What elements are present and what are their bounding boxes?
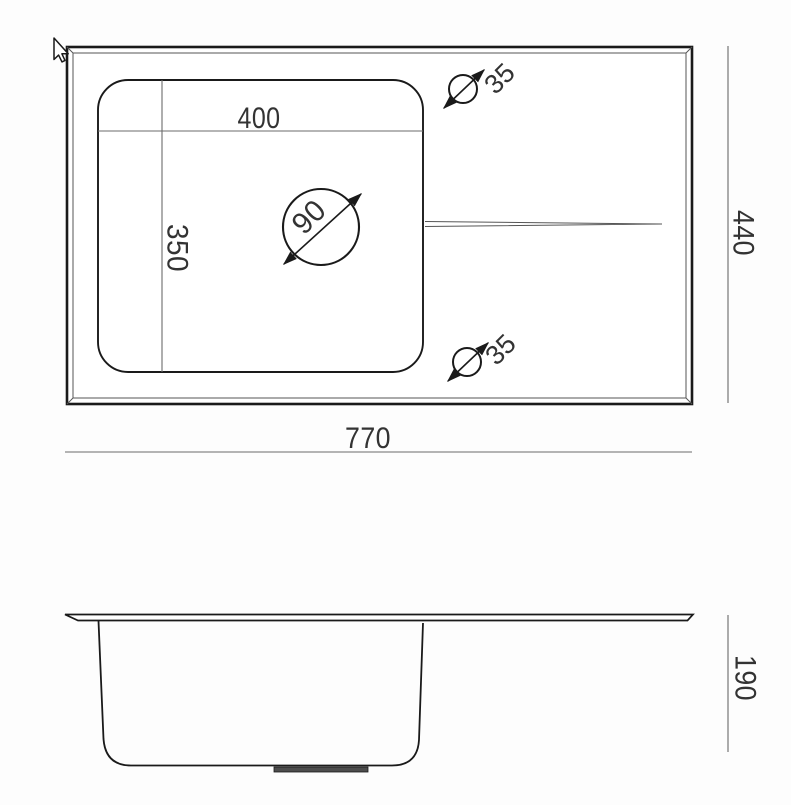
side-view: 190	[65, 615, 762, 773]
rim-profile	[65, 615, 693, 621]
depth-label: 190	[729, 655, 762, 701]
overall-width-label: 770	[345, 422, 391, 455]
drawing-svg: 400 350 90 35 35 440 770	[0, 0, 791, 800]
top-view: 400 350 90 35 35 440 770	[65, 46, 760, 455]
bowl-height-label: 350	[161, 224, 194, 272]
bowl-profile	[99, 621, 424, 766]
drain-fitting	[274, 767, 368, 772]
sink-technical-drawing: 400 350 90 35 35 440 770	[0, 0, 791, 800]
overall-height-label: 440	[727, 210, 760, 256]
bowl-width-label: 400	[238, 102, 281, 135]
